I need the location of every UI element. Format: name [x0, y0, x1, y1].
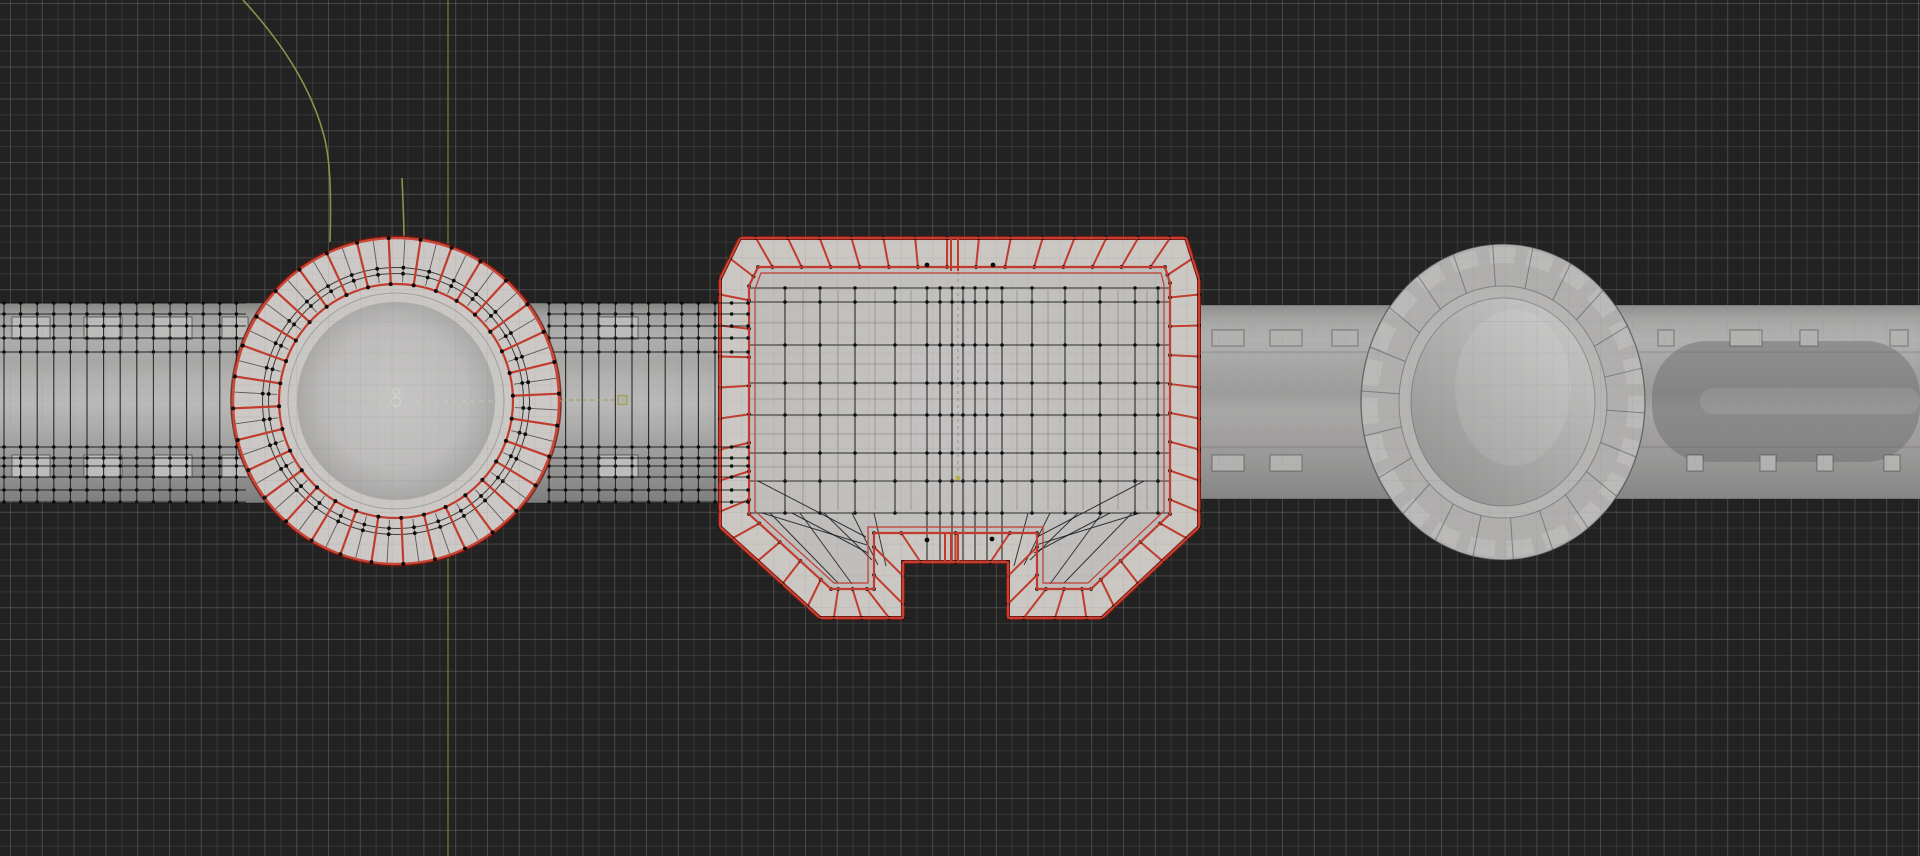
- viewport-canvas[interactable]: [0, 0, 1920, 856]
- grid-overlay: [0, 0, 1920, 856]
- blender-3d-viewport[interactable]: [0, 0, 1920, 856]
